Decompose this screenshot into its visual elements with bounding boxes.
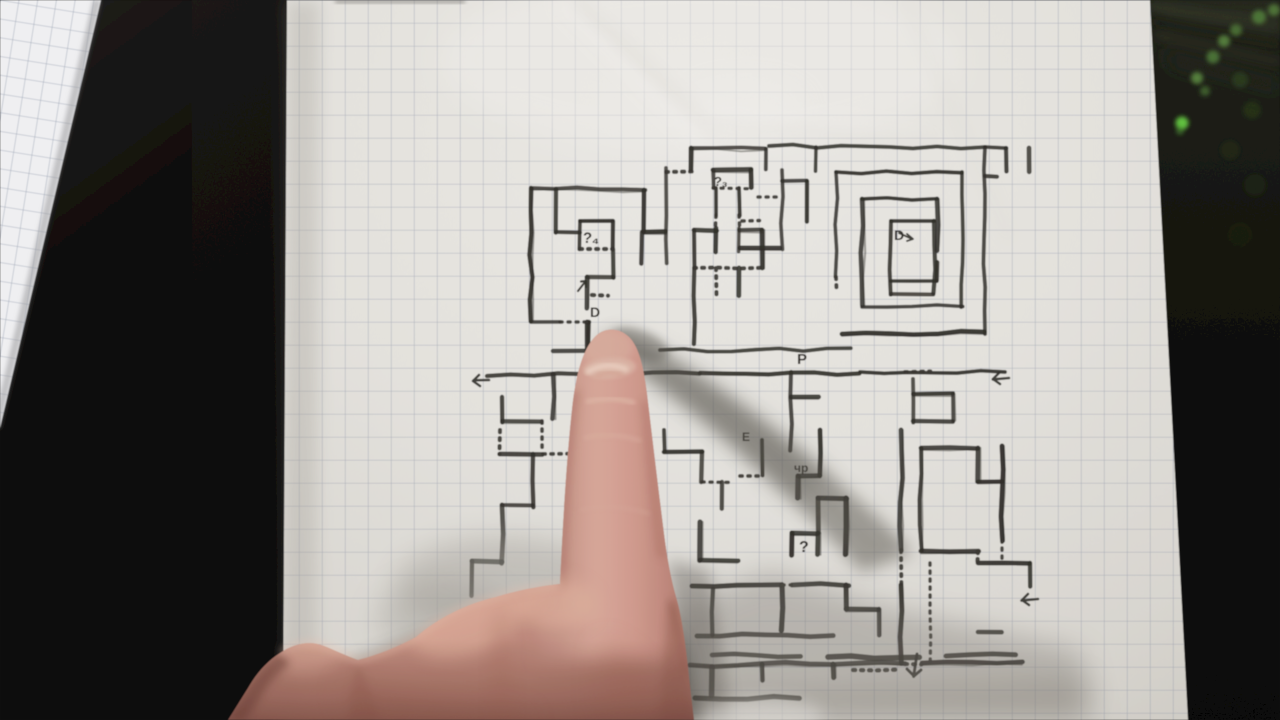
svg-text:P: P xyxy=(797,351,807,368)
svg-text:?₃: ?₃ xyxy=(713,174,728,190)
svg-text:D: D xyxy=(894,227,904,243)
svg-text:?: ? xyxy=(799,539,809,556)
svg-text:?₄: ?₄ xyxy=(582,230,599,248)
svg-text:D: D xyxy=(590,304,600,320)
